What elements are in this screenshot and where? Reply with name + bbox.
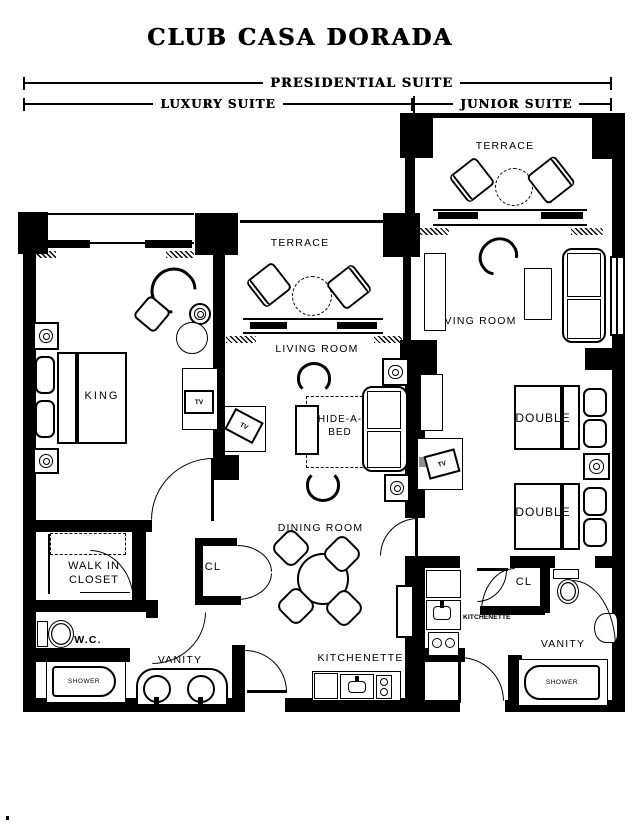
sliding-door-panel [48, 240, 90, 248]
dimension-presidential-suite: PRESIDENTIAL SUITE [23, 76, 612, 90]
nightstand-lamp-icon [583, 453, 610, 480]
stove-burner [380, 678, 388, 686]
door-leaf [415, 518, 418, 556]
terrace-chair [448, 156, 496, 204]
luxury-closet-label: CL [196, 561, 230, 573]
stove-burner [380, 688, 388, 696]
dining-room-label: DINING ROOM [258, 522, 383, 534]
dimension-luxury-suite: LUXURY SUITE [23, 97, 413, 111]
dimension-line [25, 82, 263, 84]
luxury-suite-label: LUXURY SUITE [153, 97, 282, 111]
chair [471, 230, 524, 282]
floor-plan: CLUB CASA DORADA PRESIDENTIAL SUITE LUXU… [0, 0, 637, 826]
stove-burner [432, 638, 442, 648]
wall [405, 113, 415, 213]
sink-basin [348, 681, 366, 693]
dimension-line [579, 103, 610, 105]
dresser [420, 374, 443, 431]
dimension-tick [610, 98, 612, 111]
floor-lamp-icon [384, 474, 410, 502]
window-junior-living [610, 256, 625, 336]
nightstand-lamp-icon [33, 322, 59, 350]
presidential-suite-label: PRESIDENTIAL SUITE [263, 76, 460, 91]
nightstand-lamp-icon [33, 448, 59, 474]
double-bed-2-label: DOUBLE [508, 505, 578, 519]
sofa-cushion [367, 391, 401, 429]
wall [612, 150, 625, 258]
door-leaf [458, 657, 461, 703]
wall [405, 556, 460, 568]
wall [595, 556, 625, 568]
wall [23, 245, 36, 710]
door-arc [572, 580, 616, 648]
junior-suite-label: JUNIOR SUITE [453, 97, 579, 111]
sliding-door-panel [145, 240, 192, 248]
dimension-tick [610, 77, 612, 90]
tv-icon: TV [184, 390, 214, 414]
wall [403, 213, 411, 343]
sofa-cushion [567, 253, 601, 297]
wall [240, 220, 385, 223]
sliding-door-panel [438, 212, 478, 219]
terrace-chair [526, 155, 577, 206]
toilet-tank [553, 569, 579, 579]
shower-tub: SHOWER [524, 665, 600, 700]
sofa-cushion [367, 431, 401, 468]
king-bed-headboard [57, 352, 77, 444]
page-title: CLUB CASA DORADA [80, 24, 520, 51]
faucet [440, 601, 444, 608]
junior-shower-label: SHOWER [546, 679, 578, 686]
double-bed-1-label: DOUBLE [508, 411, 578, 425]
luxury-shower-label: SHOWER [68, 678, 100, 685]
luxury-kitchenette-label: KITCHENETTE [298, 652, 423, 664]
pillow [35, 356, 55, 394]
entry-door-arc [245, 650, 287, 692]
faucet [355, 676, 359, 682]
wc-label: W.C. [66, 634, 110, 646]
shower-tub: SHOWER [52, 666, 116, 697]
sill-hatch [571, 228, 603, 235]
kitchen-counter [426, 570, 461, 598]
wall [213, 455, 239, 480]
door-leaf [247, 690, 287, 693]
pillow [583, 419, 607, 448]
stray-mark [6, 816, 9, 820]
wall [195, 538, 237, 546]
sink-basin [433, 606, 451, 620]
stove-burner [445, 638, 455, 648]
terrace-chair [325, 263, 373, 311]
hide-a-bed-label: HIDE-A-BED [311, 414, 369, 439]
wall [195, 213, 238, 255]
junior-kitchenette-label: KITCHENETTE [463, 614, 527, 621]
floor-lamp-icon [382, 358, 409, 386]
terrace-table [495, 168, 533, 206]
sill-hatch [374, 336, 402, 343]
wall [232, 645, 245, 700]
luxury-terrace-label: TERRACE [240, 237, 360, 249]
wall [612, 335, 625, 712]
pillow [35, 400, 55, 438]
hall-counter [396, 585, 414, 638]
junior-terrace-label: TERRACE [440, 140, 570, 152]
dimension-junior-suite: JUNIOR SUITE [413, 97, 612, 111]
sliding-door-panel [250, 322, 287, 329]
sill-hatch [226, 336, 256, 343]
console-table [424, 253, 446, 331]
chair [297, 362, 331, 394]
door-arc [90, 550, 134, 602]
luxury-living-room-label: LIVING ROOM [252, 343, 382, 355]
closet-rod [48, 534, 50, 594]
sofa-cushion [567, 299, 601, 339]
dimension-line [460, 82, 610, 84]
door-leaf [211, 458, 214, 521]
round-table [176, 322, 208, 354]
kitchen-cabinet [314, 673, 338, 699]
sill-hatch [416, 228, 449, 235]
dimension-line [25, 103, 153, 105]
dimension-line [283, 103, 411, 105]
dimension-line [415, 103, 453, 105]
wall [405, 700, 460, 712]
terrace-table [292, 276, 332, 316]
king-bed-label: KING [77, 390, 127, 402]
wall [195, 596, 241, 605]
closet-door-arc [237, 573, 272, 600]
coffee-table [524, 268, 552, 320]
faucet [198, 697, 203, 704]
pillow [583, 487, 607, 516]
sill-hatch [30, 251, 56, 258]
sliding-door-panel [337, 322, 377, 329]
closet-door-arc [237, 545, 272, 572]
entry-door-arc [460, 657, 504, 701]
wall [585, 348, 625, 370]
door-leaf [477, 568, 508, 571]
toilet-tank [37, 621, 48, 647]
wall [383, 213, 420, 257]
pillow [583, 388, 607, 417]
door-arc [151, 458, 213, 520]
faucet [154, 697, 159, 704]
chair [306, 470, 340, 502]
closet-shelf [50, 533, 126, 555]
wall [30, 648, 130, 662]
sliding-door-panel [541, 212, 583, 219]
door-arc [380, 518, 418, 556]
sill-hatch [166, 251, 194, 258]
terrace-chair [245, 261, 293, 309]
pillow [583, 518, 607, 547]
